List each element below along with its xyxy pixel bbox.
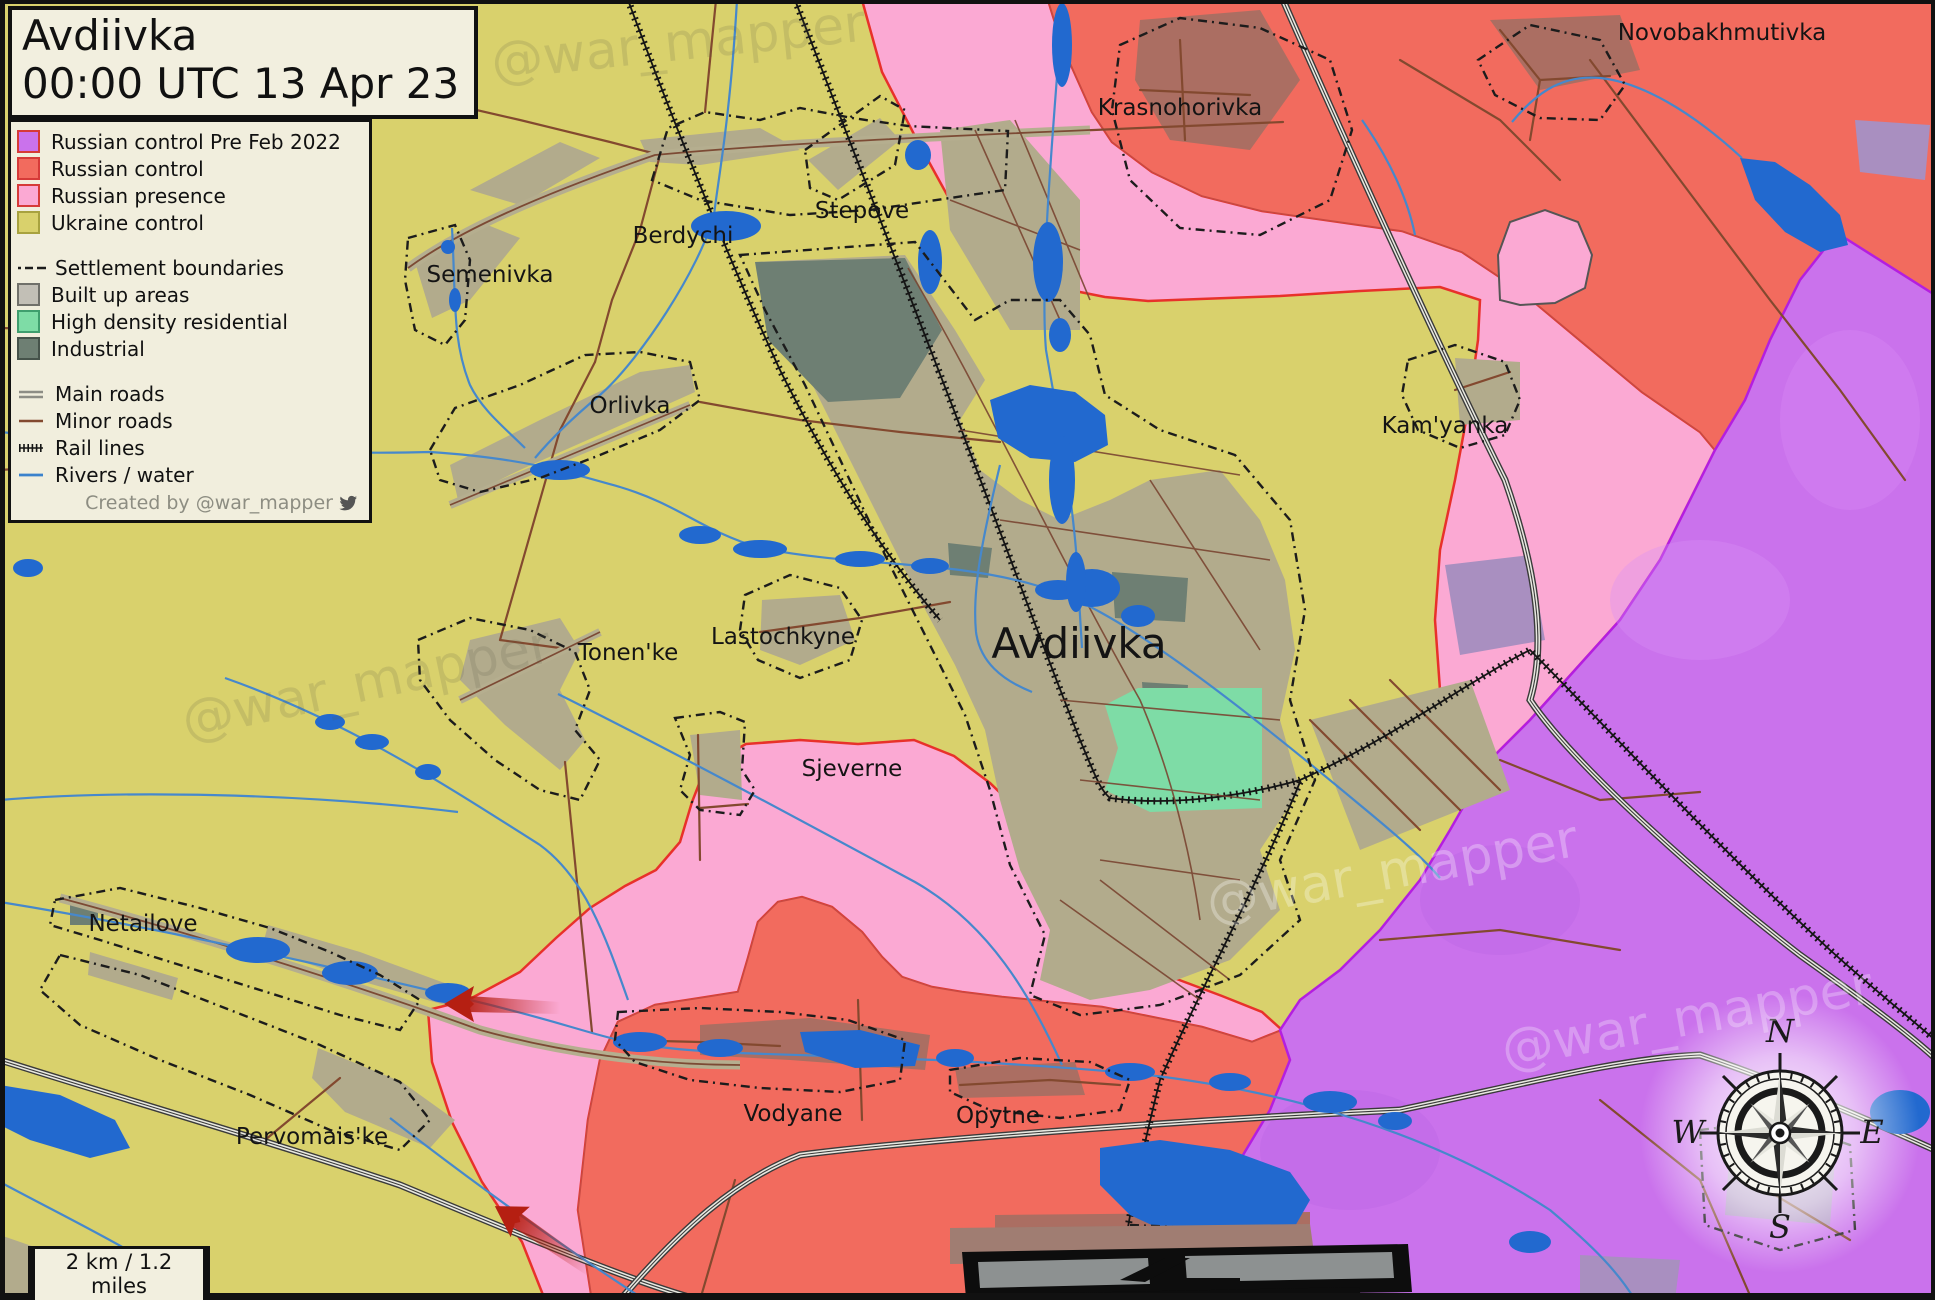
- legend-label: Russian presence: [51, 184, 226, 208]
- legend-label: Rail lines: [55, 436, 145, 460]
- legend-label: Industrial: [51, 337, 145, 361]
- legend-item-ukraine-control: Ukraine control: [17, 209, 361, 236]
- legend-item-minor-roads: Minor roads: [17, 407, 361, 434]
- rail-line-icon: [17, 438, 47, 458]
- legend-item-russian-presence: Russian presence: [17, 182, 361, 209]
- map-label-semenivka: Semenivka: [427, 262, 554, 288]
- legend-item-residential: High density residential: [17, 308, 361, 335]
- map-label-krasnohorivka: Krasnohorivka: [1098, 95, 1262, 121]
- legend-label: Built up areas: [51, 283, 189, 307]
- legend-label: Minor roads: [55, 409, 173, 433]
- legend-label: Russian control Pre Feb 2022: [51, 130, 341, 154]
- title-box: Avdiivka 00:00 UTC 13 Apr 23: [8, 6, 478, 119]
- swatch-industrial: [17, 337, 40, 360]
- boundary-line-icon: [17, 258, 47, 278]
- legend-label: Main roads: [55, 382, 165, 406]
- map-label-berdychi: Berdychi: [633, 223, 734, 249]
- map-label-pervomaiske: Pervomais'ke: [236, 1124, 388, 1150]
- legend-item-pre2022: Russian control Pre Feb 2022: [17, 128, 361, 155]
- scale-bar: 2 km / 1.2 miles: [28, 1246, 210, 1300]
- legend-item-built-up: Built up areas: [17, 281, 361, 308]
- scale-label: 2 km / 1.2 miles: [35, 1249, 203, 1300]
- legend-item-main-roads: Main roads: [17, 380, 361, 407]
- legend-item-rivers: Rivers / water: [17, 461, 361, 488]
- river-line-icon: [17, 465, 47, 485]
- legend-item-russian-control: Russian control: [17, 155, 361, 182]
- swatch-ukraine-control: [17, 211, 40, 234]
- map-label-netailove: Netailove: [88, 911, 197, 937]
- map-label-novobakhmutivka: Novobakhmutivka: [1618, 20, 1827, 46]
- map-timestamp: 00:00 UTC 13 Apr 23: [22, 60, 460, 108]
- frame-right: [1931, 0, 1935, 1300]
- compass-letter-e: E: [1859, 1113, 1883, 1151]
- credit-text: Created by @war_mapper: [85, 492, 333, 514]
- minor-road-icon: [17, 411, 47, 431]
- map-label-lastochkyne: Lastochkyne: [711, 624, 855, 650]
- legend-panel: Russian control Pre Feb 2022 Russian con…: [8, 119, 372, 523]
- legend-item-settlement-boundaries: Settlement boundaries: [17, 254, 361, 281]
- frame-left: [0, 0, 5, 1300]
- legend-label: Rivers / water: [55, 463, 194, 487]
- map-label-vodyane: Vodyane: [743, 1101, 842, 1127]
- map-label-stepove: Stepove: [815, 198, 909, 224]
- main-road-icon: [17, 384, 47, 404]
- legend-item-rail-lines: Rail lines: [17, 434, 361, 461]
- map-label-opytne: Opytne: [956, 1103, 1040, 1129]
- compass-letter-s: S: [1769, 1208, 1791, 1246]
- map-label-sjeverne: Sjeverne: [802, 756, 903, 782]
- map-label-kamyanka: Kam'yanka: [1382, 413, 1509, 439]
- legend-label: Russian control: [51, 157, 204, 181]
- map-label-orlivka: Orlivka: [590, 393, 671, 419]
- legend-item-industrial: Industrial: [17, 335, 361, 362]
- legend-label: High density residential: [51, 310, 288, 334]
- map-title: Avdiivka: [22, 12, 460, 60]
- legend-label: Settlement boundaries: [55, 256, 284, 280]
- frame-bottom: [0, 1293, 1935, 1300]
- map-stage: NESW @war_mapper@war_mapper@war_mapper@w…: [0, 0, 1935, 1300]
- swatch-russian-control: [17, 157, 40, 180]
- map-label-avdiivka: Avdiivka: [991, 619, 1166, 668]
- swatch-residential: [17, 310, 40, 333]
- swatch-built-up: [17, 283, 40, 306]
- credit-row: Created by @war_mapper: [17, 488, 361, 516]
- swatch-russian-presence: [17, 184, 40, 207]
- compass-letter-w: W: [1672, 1113, 1708, 1151]
- swatch-pre2022: [17, 130, 40, 153]
- map-label-tonenke: Tonen'ke: [577, 640, 679, 666]
- legend-label: Ukraine control: [51, 211, 204, 235]
- region-presence-pocket: [1498, 210, 1592, 305]
- frame-top: [0, 0, 1935, 4]
- twitter-bird-icon[interactable]: [337, 493, 359, 513]
